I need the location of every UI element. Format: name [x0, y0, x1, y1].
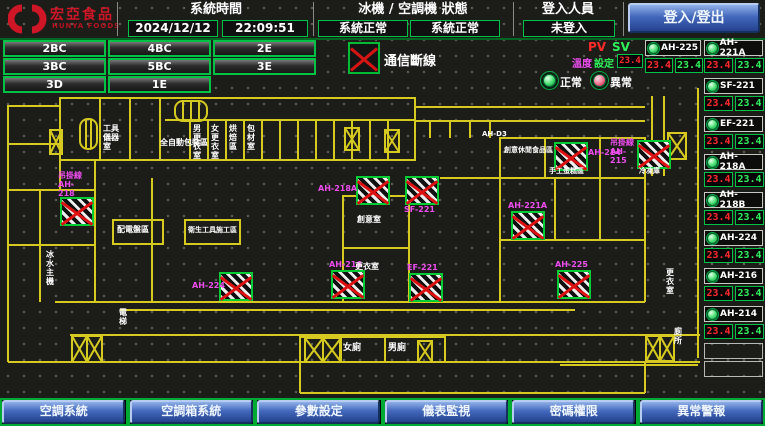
floor-button-3bc[interactable]: 3BC [3, 58, 106, 75]
comm-fail-icon [348, 42, 380, 74]
unit-pv-value: 23.4 [645, 58, 673, 73]
marker-ah216[interactable] [331, 270, 365, 299]
room-label: 烘焙區 [229, 124, 238, 151]
marker-label: AH-218A [318, 184, 357, 193]
unit-pv-value: 23.4 [704, 324, 733, 339]
room-label: 女更衣室 [211, 124, 220, 160]
unit-ah214[interactable]: AH-214 [704, 306, 763, 322]
room-label: 配電盤區 [117, 225, 149, 234]
floorplan: 吊掛線 AH-218 AH-218A SF-221 AH-221A AH-214… [0, 88, 705, 400]
marker-sf221[interactable] [405, 176, 439, 205]
room-label: 衛生工具施工區 [188, 226, 237, 235]
room-label: 更衣室 [666, 268, 676, 295]
normal-label: 正常 [560, 74, 582, 90]
floor-button-2e[interactable]: 2E [213, 40, 316, 57]
unit-pv-value: 23.4 [704, 286, 733, 301]
floor-button-4bc[interactable]: 4BC [108, 40, 211, 57]
login-logout-button[interactable]: 登入/登出 [628, 3, 760, 33]
machine-status-label: 冰機 / 空調機 狀態 [315, 2, 511, 17]
unit-status-lamp-icon [707, 195, 718, 206]
marker-ah218a[interactable] [356, 176, 390, 205]
normal-lamp-icon [543, 74, 556, 87]
unit-values: 23.4 23.4 [704, 286, 764, 301]
unit-ah216[interactable]: AH-216 [704, 268, 763, 284]
unit-slot-empty [704, 361, 763, 377]
company-name: 宏亞食品 [50, 4, 114, 24]
sv-label: SV [612, 40, 630, 54]
unit-status-lamp-icon [707, 271, 718, 282]
room-label: 電梯 [119, 308, 129, 326]
floor-button-3d[interactable]: 3D [3, 76, 106, 93]
unit-values: 23.4 23.4 [704, 172, 764, 187]
nav-abnormal-alarm-button[interactable]: 異常警報 [640, 400, 763, 424]
room-label: AH-D3 [482, 130, 507, 139]
marker-label: AH-221A [508, 201, 547, 210]
unit-status-lamp-icon [707, 233, 718, 244]
unit-values: 23.4 23.4 [704, 134, 764, 149]
unit-name-label: AH-225 [661, 43, 698, 53]
marker-ef221[interactable] [409, 273, 443, 302]
marker-ah218[interactable] [60, 197, 94, 226]
unit-name-label: AH-214 [720, 309, 757, 319]
marker-label: AH-225 [555, 260, 588, 269]
unit-sv-value: 23.4 [735, 96, 764, 111]
hmi-screen: 吊掛線 AH-218 AH-218A SF-221 AH-221A AH-214… [0, 0, 765, 426]
abnormal-lamp-icon [593, 74, 606, 87]
floor-button-2bc[interactable]: 2BC [3, 40, 106, 57]
nav-password-authority-button[interactable]: 密碼權限 [512, 400, 635, 424]
floor-button-5bc[interactable]: 5BC [108, 58, 211, 75]
unit-status-lamp-icon [707, 119, 718, 130]
unit-sv-value: 23.4 [675, 58, 703, 73]
nav-parameter-setting-button[interactable]: 參數設定 [257, 400, 380, 424]
unit-name-label: SF-221 [720, 81, 755, 91]
login-state: 未登入 [523, 20, 615, 37]
unit-name-label: EF-221 [720, 119, 755, 129]
marker-label: AH-224 [192, 281, 225, 290]
marker-ah225[interactable] [557, 270, 591, 299]
unit-ef221[interactable]: EF-221 [704, 116, 763, 132]
nav-ahu-system-button[interactable]: 空調箱系統 [130, 400, 253, 424]
nav-meter-monitor-button[interactable]: 儀表監視 [385, 400, 508, 424]
room-label: 廁所 [674, 327, 684, 345]
unit-sv-value: 23.4 [735, 248, 764, 263]
unit-values: 23.4 23.4 [645, 58, 703, 73]
unit-status-lamp-icon [707, 81, 718, 92]
room-label: 男廁 [388, 344, 406, 353]
marker-label: SF-221 [404, 205, 435, 214]
unit-values: 23.4 23.4 [704, 96, 764, 111]
room-label: 工具儀器室 [103, 124, 123, 151]
bottom-nav-bar: 空調系統 空調箱系統 參數設定 儀表監視 密碼權限 異常警報 [0, 398, 765, 426]
unit-pv-value: 23.4 [704, 134, 733, 149]
unit-name-label: AH-221A [720, 38, 762, 58]
unit-sf221[interactable]: SF-221 [704, 78, 763, 94]
marker-label: 吊掛線 AH-215 [610, 138, 636, 165]
unit-sv-value: 23.4 [735, 58, 764, 73]
ahu-status: 系統正常 [410, 20, 500, 37]
room-label: 手工蛋糕區 [549, 167, 584, 176]
unit-values: 23.4 23.4 [704, 248, 764, 263]
unit-name-label: AH-218A [720, 152, 762, 172]
marker-ah215[interactable] [637, 140, 671, 169]
login-person-label: 登入人員 [515, 2, 621, 17]
room-label: 冰水主機 [46, 250, 56, 286]
room-label: 女廁 [343, 344, 361, 353]
unit-ah218a[interactable]: AH-218A [704, 154, 763, 170]
unit-pv-value: 23.4 [704, 210, 733, 225]
unit-pv-value: 23.4 [704, 248, 733, 263]
marker-label: 吊掛線 AH-218 [58, 171, 88, 198]
unit-pv-value: 23.4 [704, 172, 733, 187]
top-bar: 宏亞食品 HUNYA FOODS 系統時間 2024/12/12 22:09:5… [0, 0, 765, 40]
unit-sv-value: 23.4 [735, 172, 764, 187]
unit-name-label: AH-218B [720, 190, 762, 210]
marker-ah221a[interactable] [511, 211, 545, 240]
chiller-status: 系統正常 [318, 20, 408, 37]
unit-status-lamp-icon [707, 309, 718, 320]
company-logo-icon [8, 4, 48, 34]
unit-values: 23.4 23.4 [704, 324, 764, 339]
unit-ah218b[interactable]: AH-218B [704, 192, 763, 208]
unit-status-lamp-icon [707, 43, 718, 54]
company-name-en: HUNYA FOODS [52, 22, 120, 30]
nav-ac-system-button[interactable]: 空調系統 [2, 400, 125, 424]
floor-button-3e[interactable]: 3E [213, 58, 316, 75]
setting-label-1: 溫度 [572, 55, 592, 70]
unit-slot-empty [704, 343, 763, 359]
floor-button-1e[interactable]: 1E [108, 76, 211, 93]
room-label: 包材室 [247, 124, 256, 151]
system-date: 2024/12/12 [128, 20, 218, 37]
setting-value: 23.4 [617, 54, 643, 68]
room-label: 創意室 [357, 215, 381, 224]
abnormal-label: 異常 [610, 74, 632, 90]
room-label: 創意休閒食品區 [504, 146, 553, 155]
unit-ah225[interactable]: AH-225 [645, 40, 701, 56]
unit-sv-value: 23.4 [735, 134, 764, 149]
unit-ah224[interactable]: AH-224 [704, 230, 763, 246]
unit-values: 23.4 23.4 [704, 210, 764, 225]
room-label: 冷凍庫 [639, 167, 660, 176]
unit-values: 23.4 23.4 [704, 58, 764, 73]
unit-pv-value: 23.4 [704, 58, 733, 73]
unit-ah221a[interactable]: AH-221A [704, 40, 763, 56]
unit-name-label: AH-216 [720, 271, 757, 281]
unit-status-lamp-icon [648, 43, 659, 54]
system-time-label: 系統時間 [120, 2, 312, 17]
unit-sv-value: 23.4 [735, 210, 764, 225]
unit-name-label: AH-224 [720, 233, 757, 243]
setting-label-2: 設定 [594, 55, 614, 70]
room-label: 男更衣室 [193, 124, 202, 160]
pv-label: PV [588, 40, 606, 54]
marker-label: EF-221 [407, 263, 438, 272]
unit-sv-value: 23.4 [735, 324, 764, 339]
unit-pv-value: 23.4 [704, 96, 733, 111]
comm-fail-label: 通信斷線 [384, 50, 436, 69]
unit-status-lamp-icon [707, 157, 718, 168]
system-clock: 22:09:51 [222, 20, 308, 37]
unit-sv-value: 23.4 [735, 286, 764, 301]
room-label: 更衣室 [355, 262, 379, 271]
